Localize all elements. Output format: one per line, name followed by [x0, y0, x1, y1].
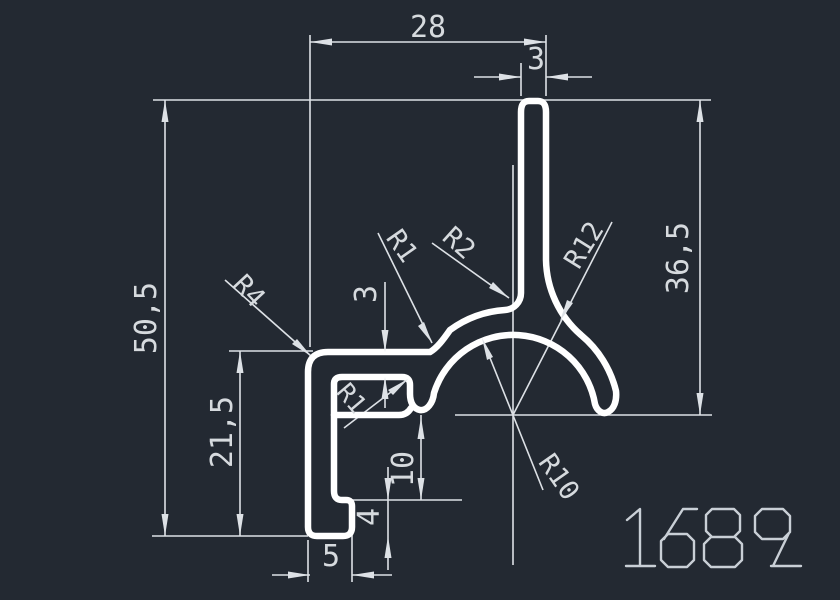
arrow-36-5-top: [697, 100, 704, 122]
dim-50-5-label: 50,5: [129, 282, 164, 354]
dim-4-label: 4: [352, 508, 387, 526]
digit-9: [755, 509, 801, 566]
cad-viewport: 28 3 50,5 36,5 21,5 3 10 4 5 R4 R1 R2 R1…: [0, 0, 840, 600]
dim-36-5-label: 36,5: [661, 222, 696, 294]
arrow-21-5-top: [237, 351, 244, 373]
arrowheads: [162, 39, 704, 579]
dim-10-label: 10: [386, 451, 421, 487]
digit-1: [626, 509, 655, 566]
radius-r4-label: R4: [226, 269, 271, 314]
arrow-10-top: [418, 417, 425, 439]
dim-3arm-label: 3: [349, 285, 384, 303]
radius-r12-label: R12: [558, 216, 610, 274]
arrow-4-bottom: [385, 536, 392, 558]
dim-21-5-label: 21,5: [205, 396, 240, 468]
arrow-3top-right: [546, 74, 568, 81]
arrow-5-right: [352, 572, 374, 579]
arrow-3arm-top: [382, 330, 389, 352]
arrow-3top-left: [499, 74, 521, 81]
arrow-r1-arm: [418, 322, 432, 343]
arrow-r2: [489, 282, 509, 298]
arrow-28-left: [310, 39, 332, 46]
part-number: 1689 1689: [626, 509, 801, 567]
radius-r2-label: R2: [436, 221, 481, 266]
arrow-r4: [292, 339, 311, 356]
arrow-36-5-bottom: [697, 393, 704, 415]
arrow-r1-box: [388, 379, 408, 395]
radius-r1-arm-label: R1: [380, 224, 424, 268]
arrow-5-left: [288, 572, 310, 579]
dimension-lines: [152, 35, 712, 582]
radius-r10-label: R10: [532, 448, 585, 506]
arrow-21-5-bottom: [237, 514, 244, 536]
dim-5-label: 5: [322, 539, 340, 574]
cad-canvas: 28 3 50,5 36,5 21,5 3 10 4 5 R4 R1 R2 R1…: [0, 0, 840, 600]
dimension-labels: 28 3 50,5 36,5 21,5 3 10 4 5 R4 R1 R2 R1…: [129, 10, 696, 574]
dim-28-label: 28: [410, 10, 446, 45]
arrow-50-5-top: [162, 100, 169, 122]
arrow-3arm-bottom: [382, 377, 389, 399]
arrow-50-5-bottom: [162, 514, 169, 536]
dim-3top-label: 3: [527, 42, 545, 77]
